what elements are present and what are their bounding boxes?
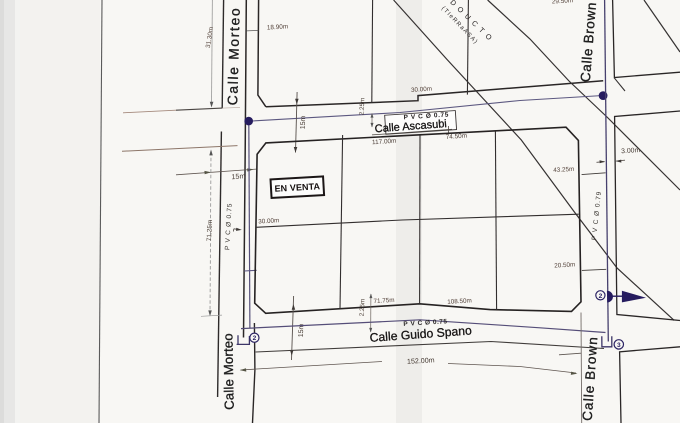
svg-text:Calle Morteo: Calle Morteo (220, 333, 236, 410)
svg-text:30.00m: 30.00m (411, 86, 432, 94)
svg-text:3: 3 (617, 342, 621, 349)
svg-text:3.00m: 3.00m (621, 147, 641, 155)
svg-text:2: 2 (599, 293, 603, 300)
svg-text:18.90m: 18.90m (267, 23, 289, 31)
svg-text:2.25m: 2.25m (359, 98, 367, 116)
svg-text:152.00m: 152.00m (407, 356, 435, 366)
svg-text:20.50m: 20.50m (554, 261, 575, 269)
svg-text:15m: 15m (300, 115, 307, 129)
svg-text:15m: 15m (231, 171, 246, 181)
svg-text:71.75m: 71.75m (373, 297, 394, 305)
svg-text:108.50m: 108.50m (447, 297, 472, 305)
svg-text:30.00m: 30.00m (258, 217, 279, 225)
svg-text:2: 2 (253, 335, 257, 342)
svg-text:43.25m: 43.25m (553, 166, 574, 174)
svg-text:Calle Morteo: Calle Morteo (225, 6, 243, 105)
svg-text:71.25m: 71.25m (206, 219, 214, 241)
svg-text:2.25m: 2.25m (359, 299, 367, 317)
